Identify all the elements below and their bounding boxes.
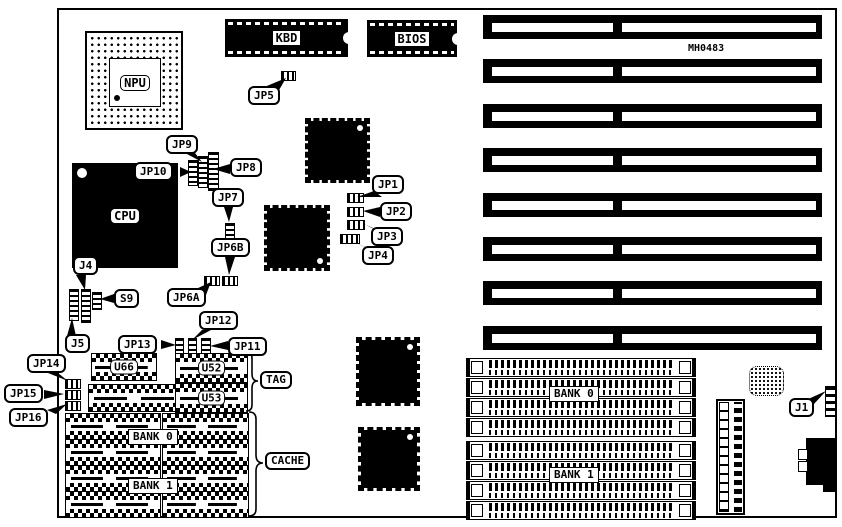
tag-region-label: TAG: [260, 371, 292, 389]
jumper-jp14: [65, 379, 81, 389]
simm-pin-comb: [489, 453, 673, 458]
isa-slot-segment: [622, 67, 816, 76]
qfp-pin1-dot: [407, 434, 413, 440]
u66-label: U66: [110, 360, 138, 375]
simm-latch: [679, 381, 691, 394]
din-mount-tab: [798, 449, 808, 460]
qfp-pin1-dot: [357, 125, 363, 131]
qfp-chip: [305, 118, 370, 183]
qfp-pin1-dot: [317, 258, 323, 264]
isa-slot: [483, 59, 822, 83]
tag-ram-chip-u52: U52: [175, 353, 248, 383]
simm-latch: [679, 464, 691, 477]
callout-jp3: JP3: [371, 227, 403, 246]
u52-label: U52: [198, 361, 226, 376]
simm-latch: [471, 484, 483, 497]
isa-slot-segment: [492, 334, 613, 343]
simm-socket: [466, 481, 696, 500]
isa-slot-segment: [492, 67, 613, 76]
qfp-chip: [264, 205, 330, 271]
npu-pin1-dot: [114, 95, 120, 101]
jumper-jp9: [198, 156, 208, 188]
isa-slot-segment: [622, 334, 816, 343]
callout-jp14: JP14: [27, 354, 66, 373]
isa-slot-segment: [492, 245, 613, 254]
dip-socket: [88, 384, 188, 412]
simm-latch: [471, 444, 483, 457]
simm-socket: [466, 501, 696, 520]
simm-latch: [679, 484, 691, 497]
isa-slot-segment: [492, 156, 613, 165]
simm-pin-comb: [489, 410, 673, 415]
simm-pin-comb: [489, 493, 673, 498]
callout-j5: J5: [65, 334, 90, 353]
callout-jp9: JP9: [166, 135, 198, 154]
npu-label: NPU: [120, 75, 150, 91]
isa-slot: [483, 15, 822, 39]
keyboard-din-connector: [806, 438, 837, 485]
simm-latch: [679, 504, 691, 517]
bios-notch: [452, 33, 458, 45]
simm-bank1-label: BANK 1: [549, 467, 599, 483]
jumper-jp2: [347, 207, 364, 217]
callout-s9: S9: [114, 289, 139, 308]
simm-pin-comb: [489, 420, 673, 428]
bios-label: BIOS: [394, 31, 431, 47]
callout-jp12: JP12: [199, 311, 238, 330]
callout-jp2: JP2: [380, 202, 412, 221]
npu-socket-center: NPU: [109, 58, 161, 107]
simm-pin-comb: [489, 503, 673, 511]
callout-jp1: JP1: [372, 175, 404, 194]
simm-bank0-label: BANK 0: [549, 386, 599, 402]
kbd-label: KBD: [272, 30, 302, 46]
simm-latch: [679, 421, 691, 434]
jumper-jp1: [347, 193, 364, 203]
callout-jp6b: JP6B: [211, 238, 250, 257]
callout-jp8: JP8: [230, 158, 262, 177]
simm-pin-comb: [489, 370, 673, 375]
npu-socket: NPU: [85, 31, 183, 130]
jumper-jp6b: [222, 276, 238, 286]
simm-socket: [466, 441, 696, 460]
qfp-chip: [356, 337, 420, 406]
isa-slot-segment: [622, 201, 816, 210]
simm-latch: [471, 464, 483, 477]
isa-slot-segment: [622, 112, 816, 121]
din-mount-tab: [798, 461, 808, 472]
motherboard-diagram: MH0483 NPU KBD BIOS CPU U66 U52 U53: [0, 0, 842, 527]
switch-s9: [92, 292, 102, 310]
kbd-chip: KBD: [225, 19, 348, 57]
cache-socket: [162, 491, 249, 518]
qfp-chip: [358, 427, 420, 491]
isa-slot: [483, 281, 822, 305]
callout-jp7: JP7: [212, 188, 244, 207]
kbd-notch: [343, 32, 349, 44]
crystal-oscillator: [749, 366, 784, 396]
simm-socket: [466, 358, 696, 377]
jumper-jp8: [208, 152, 219, 191]
jumper-jp12: [188, 338, 197, 354]
callout-jp6a: JP6A: [167, 288, 206, 307]
cpu-label: CPU: [110, 208, 140, 224]
simm-latch: [471, 421, 483, 434]
jumper-jp15: [65, 390, 81, 400]
simm-pin-comb: [489, 443, 673, 451]
qfp-pin1-dot: [407, 344, 413, 350]
callout-jp5: JP5: [248, 86, 280, 105]
jumper-jp4: [340, 234, 360, 244]
cache-bank1-label: BANK 1: [128, 478, 178, 494]
callout-jp10: JP10: [134, 162, 173, 181]
isa-slot-segment: [622, 289, 816, 298]
isa-slot-segment: [492, 112, 613, 121]
simm-socket: [466, 418, 696, 437]
isa-slot-segment: [492, 289, 613, 298]
simm-latch: [679, 361, 691, 374]
isa-slot-segment: [492, 23, 613, 32]
isa-slot: [483, 326, 822, 350]
jumper-jp6a: [204, 276, 220, 286]
callout-jp4: JP4: [362, 246, 394, 265]
simm-latch: [679, 444, 691, 457]
jumper-jp13: [175, 338, 184, 354]
header-j1: [825, 386, 836, 417]
tag-ram-chip-u53: U53: [175, 383, 248, 413]
power-connector: [716, 399, 745, 515]
isa-slot-segment: [622, 23, 816, 32]
callout-j4: J4: [73, 256, 98, 275]
callout-jp15: JP15: [4, 384, 43, 403]
u53-label: U53: [198, 391, 226, 406]
isa-slot: [483, 104, 822, 128]
cache-region-label: CACHE: [265, 452, 310, 470]
jumper-jp10: [188, 160, 198, 186]
isa-slot: [483, 148, 822, 172]
jumper-jp16: [65, 401, 81, 411]
part-number: MH0483: [688, 43, 724, 54]
isa-slot: [483, 237, 822, 261]
simm-pin-comb: [489, 360, 673, 368]
simm-pin-comb: [489, 430, 673, 435]
jumper-jp5: [281, 71, 296, 81]
jumper-jp3: [347, 220, 365, 230]
simm-latch: [471, 381, 483, 394]
isa-slot-segment: [622, 156, 816, 165]
simm-latch: [471, 361, 483, 374]
callout-jp13: JP13: [118, 335, 157, 354]
simm-pin-comb: [489, 483, 673, 491]
simm-latch: [679, 401, 691, 414]
simm-latch: [471, 504, 483, 517]
isa-slot: [483, 193, 822, 217]
keyboard-din-connector-base: [823, 485, 837, 492]
bios-chip: BIOS: [367, 20, 457, 57]
header-j5: [69, 289, 79, 321]
jumper-jp11: [201, 338, 211, 354]
header-j4: [81, 289, 91, 323]
cpu-pin1-dot: [77, 168, 87, 178]
isa-slot-segment: [622, 245, 816, 254]
cache-socket: [65, 491, 161, 518]
cache-bank0-label: BANK 0: [128, 429, 178, 445]
simm-latch: [471, 401, 483, 414]
simm-pin-comb: [489, 513, 673, 518]
tag-ram-chip-u66: U66: [91, 353, 157, 381]
isa-slot-segment: [492, 201, 613, 210]
callout-jp11: JP11: [228, 337, 267, 356]
callout-jp16: JP16: [9, 408, 48, 427]
callout-j1: J1: [789, 398, 814, 417]
